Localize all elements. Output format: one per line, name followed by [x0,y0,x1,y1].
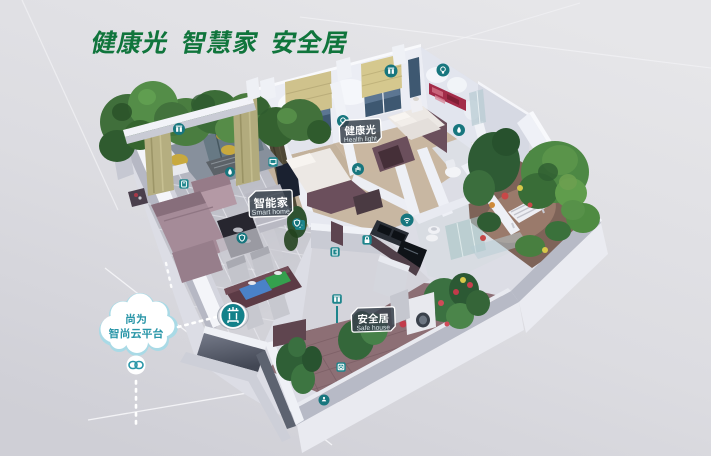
svg-text:Smart home: Smart home [252,209,290,217]
svg-text:Safe house: Safe house [356,324,390,332]
